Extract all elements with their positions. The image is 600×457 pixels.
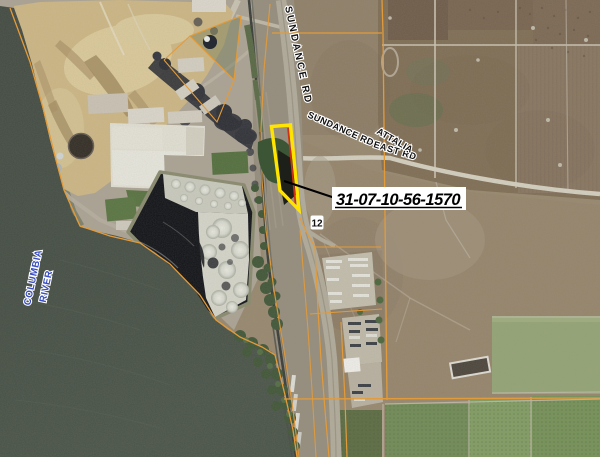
- svg-text:31-07-10-56-1570: 31-07-10-56-1570: [336, 191, 461, 209]
- svg-text:12: 12: [311, 219, 323, 230]
